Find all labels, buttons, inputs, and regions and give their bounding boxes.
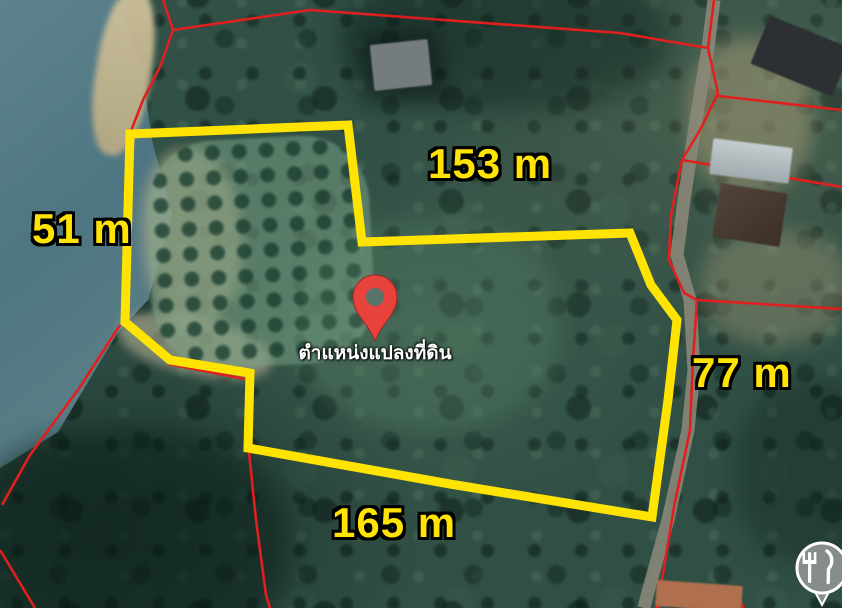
pin-caption: ตำแหน่งแปลงที่ดิน — [275, 338, 475, 368]
poi-circle — [797, 543, 842, 593]
satellite-map-canvas[interactable]: 51 m 153 m 77 m 165 m ตำแหน่งแปลงที่ดิน — [0, 0, 842, 608]
markers-layer — [0, 0, 842, 608]
location-pin[interactable] — [353, 275, 397, 341]
restaurant-poi[interactable] — [797, 543, 842, 605]
